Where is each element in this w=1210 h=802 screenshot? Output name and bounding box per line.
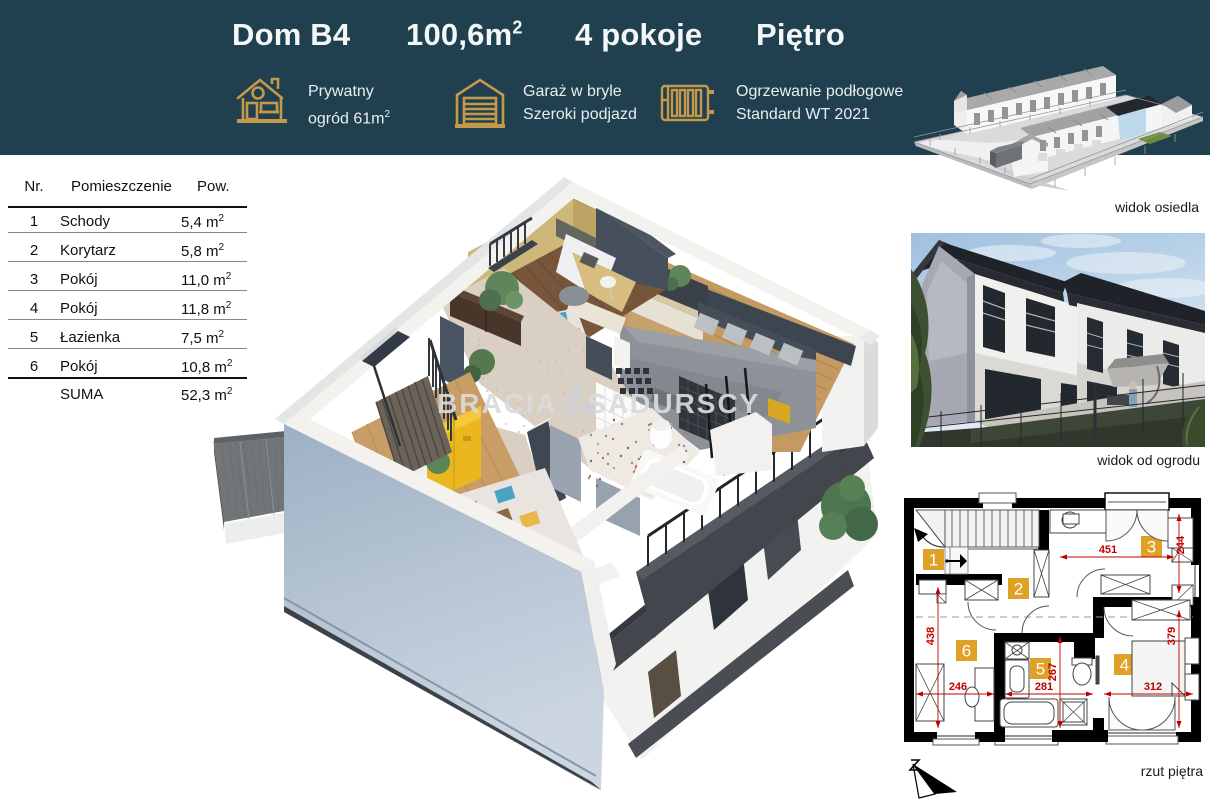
svg-text:451: 451	[1099, 544, 1117, 556]
svg-text:281: 281	[1035, 681, 1053, 693]
svg-text:3: 3	[1147, 538, 1156, 557]
svg-text:244: 244	[1175, 535, 1187, 554]
svg-text:6: 6	[962, 642, 971, 661]
svg-text:438: 438	[925, 627, 937, 645]
svg-text:312: 312	[1144, 681, 1162, 693]
svg-text:267: 267	[1047, 663, 1059, 681]
svg-text:246: 246	[949, 681, 967, 693]
svg-text:2: 2	[1014, 580, 1023, 599]
svg-text:4: 4	[1120, 656, 1129, 675]
svg-text:1: 1	[929, 551, 938, 570]
svg-text:379: 379	[1166, 627, 1178, 645]
svg-text:5: 5	[1036, 660, 1045, 679]
